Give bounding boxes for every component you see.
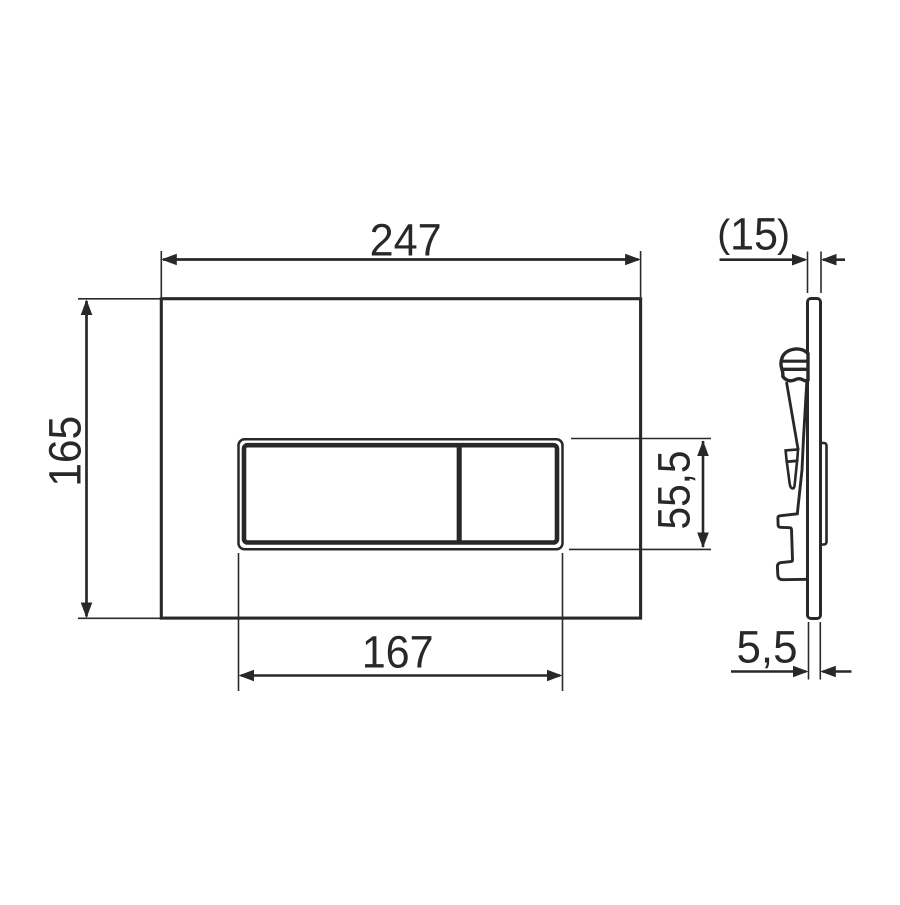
svg-text:167: 167 xyxy=(362,627,434,678)
svg-text:247: 247 xyxy=(370,215,442,266)
svg-text:55,5: 55,5 xyxy=(649,451,700,530)
svg-text:): ) xyxy=(777,213,790,256)
svg-text:15: 15 xyxy=(730,208,778,259)
svg-text:5,5: 5,5 xyxy=(737,622,798,673)
svg-text:165: 165 xyxy=(40,416,91,487)
svg-text:(: ( xyxy=(717,213,730,256)
